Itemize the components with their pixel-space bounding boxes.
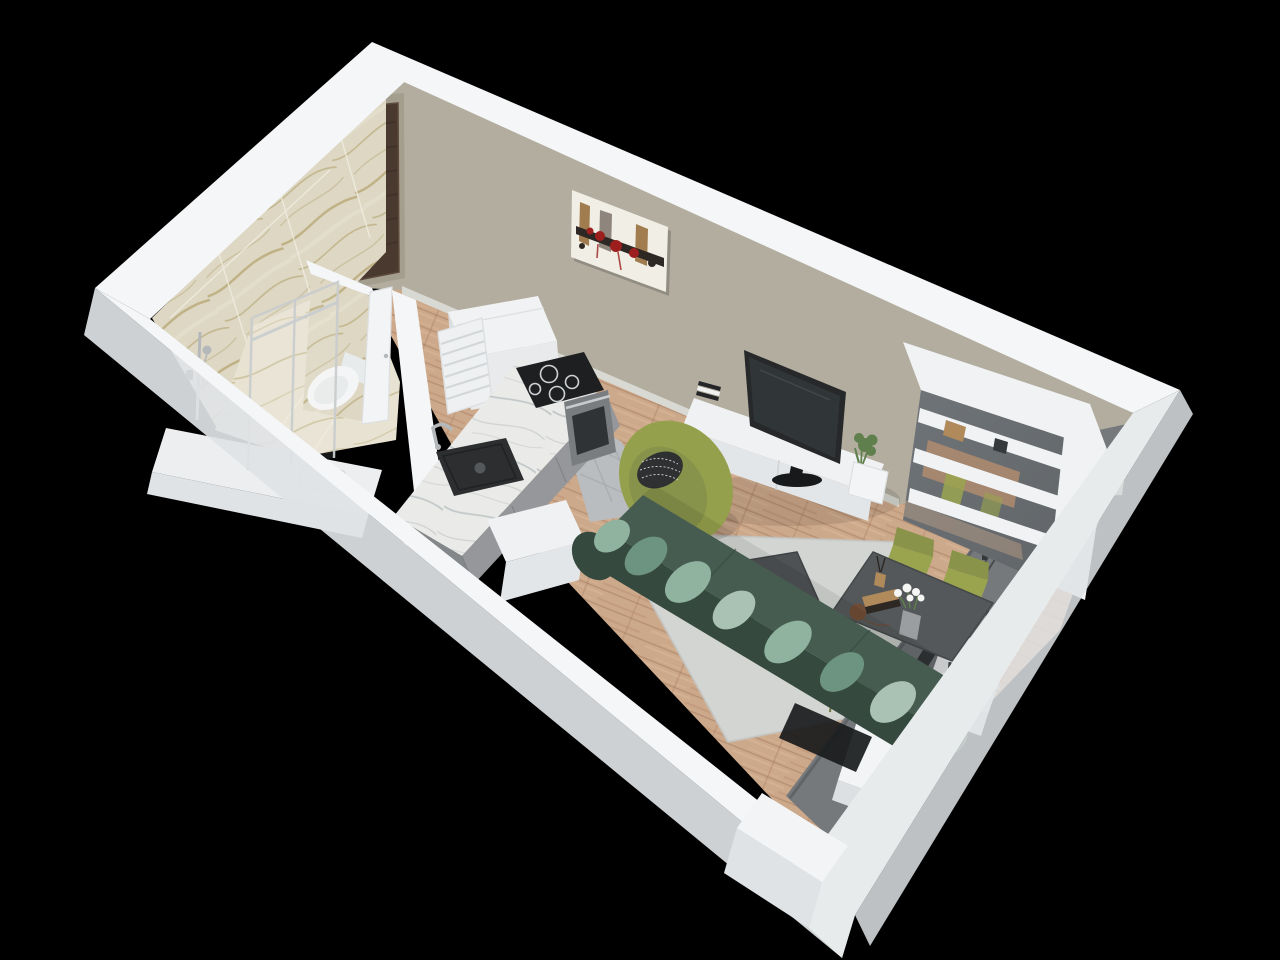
door-handle-icon: [384, 354, 388, 358]
towel-radiator: [438, 318, 492, 414]
floorplan-3d-render: [0, 0, 1280, 960]
scene-canvas: [0, 0, 1280, 960]
